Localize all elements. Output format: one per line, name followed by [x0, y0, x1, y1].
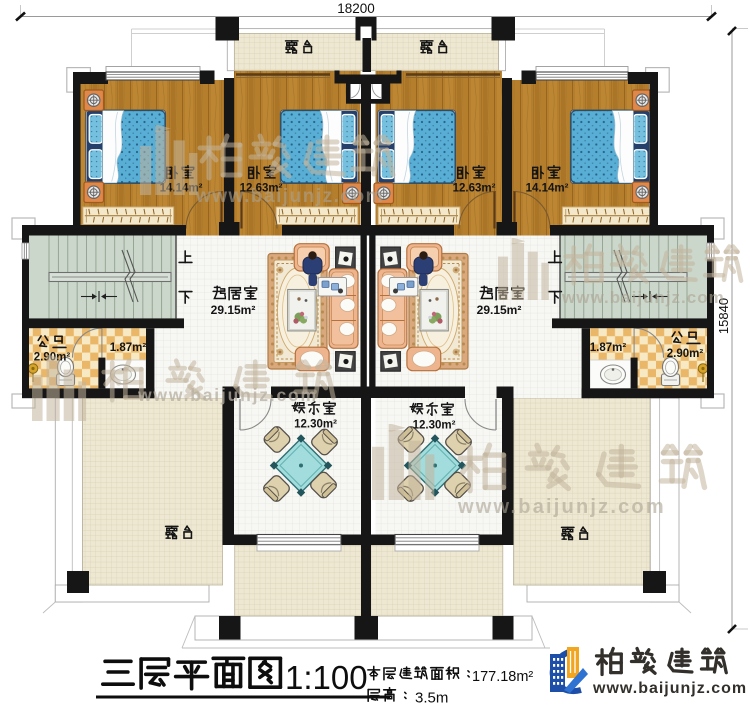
svg-text:1.87m²: 1.87m² — [590, 342, 627, 354]
svg-text:12.63m²: 12.63m² — [453, 183, 496, 195]
svg-text:www.baijunjz.com: www.baijunjz.com — [561, 288, 725, 307]
svg-text:3.5m: 3.5m — [415, 690, 448, 707]
svg-text:www.baijunjz.com: www.baijunjz.com — [195, 186, 384, 207]
svg-text:177.18m²: 177.18m² — [472, 669, 533, 685]
svg-text:www.baijunjz.com: www.baijunjz.com — [137, 385, 318, 405]
svg-text:12.30m²: 12.30m² — [294, 419, 337, 431]
svg-text:www.baijunjz.com: www.baijunjz.com — [592, 680, 747, 697]
svg-text:12.30m²: 12.30m² — [413, 420, 456, 432]
svg-text:www.baijunjz.com: www.baijunjz.com — [457, 496, 666, 518]
svg-text:29.15m²: 29.15m² — [211, 303, 256, 317]
svg-text:29.15m²: 29.15m² — [477, 303, 522, 317]
svg-text:1:100: 1:100 — [285, 659, 368, 696]
svg-text:1.87m²: 1.87m² — [110, 342, 147, 354]
svg-text:2.90m²: 2.90m² — [667, 348, 704, 360]
svg-text:18200: 18200 — [337, 1, 375, 16]
svg-text:14.14m²: 14.14m² — [526, 183, 569, 195]
